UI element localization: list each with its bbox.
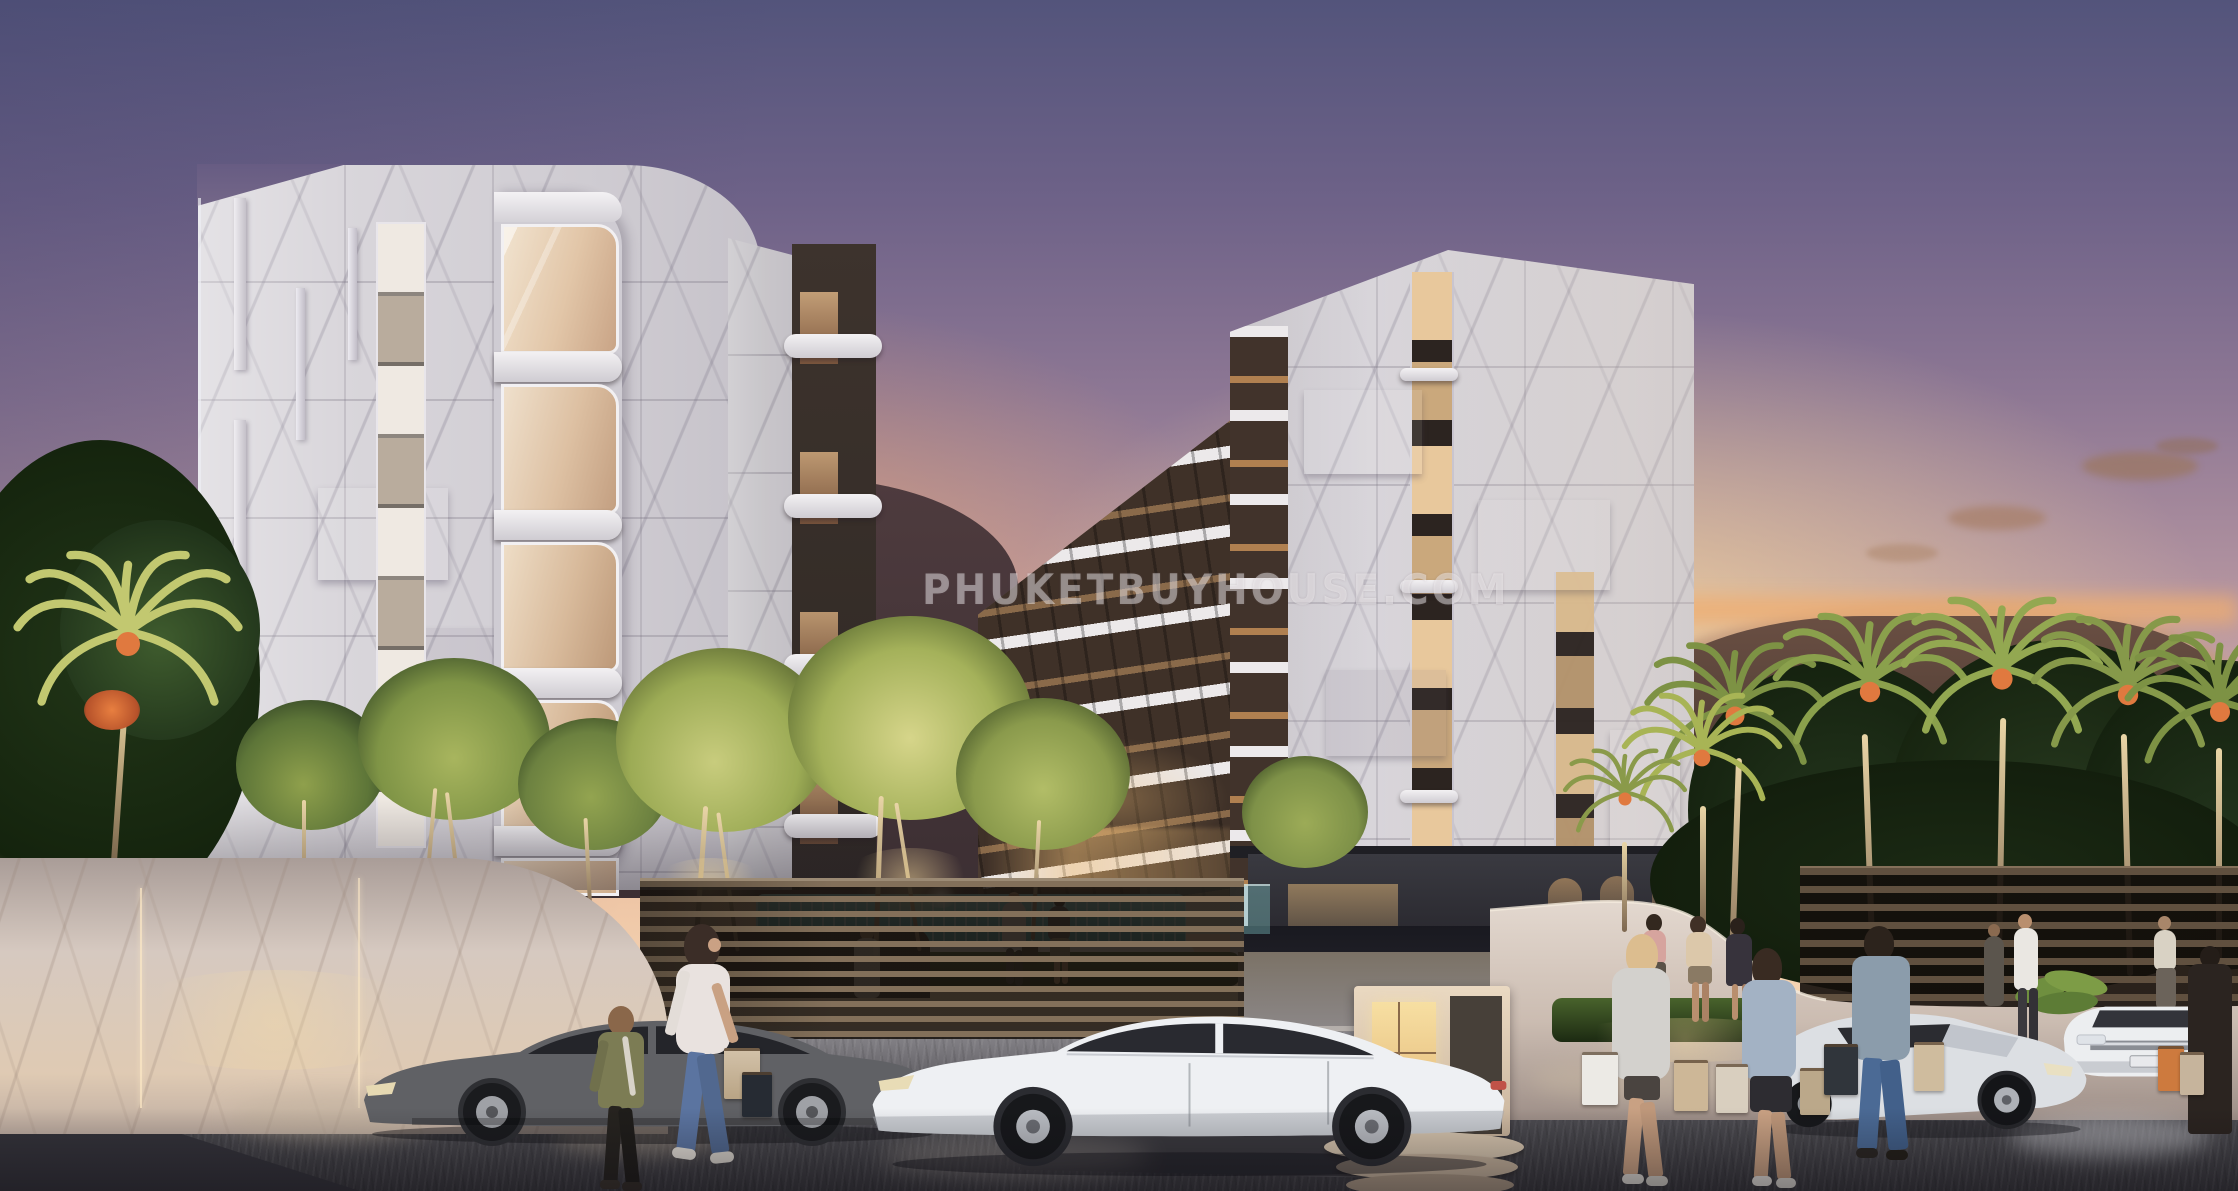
sunset-condo-rendering: PHUKETBUYHOUSE.COM [0, 0, 2238, 1191]
bay-window [501, 542, 619, 672]
bay-window [501, 224, 619, 354]
detail-shape [1750, 1076, 1792, 1112]
detail-shape [1852, 956, 1910, 1060]
detail-shape [2014, 928, 2038, 990]
shopping-bag [1674, 1060, 1708, 1111]
facade-tile-relief [1304, 390, 1422, 474]
detail-shape [2018, 914, 2032, 929]
shopping-bag [1824, 1044, 1858, 1095]
royal-palm [2120, 632, 2238, 792]
window-ledge [1400, 790, 1458, 803]
palm-flower-cluster [84, 690, 140, 730]
tree-canopy [1242, 756, 1368, 868]
detail-shape [366, 1082, 396, 1096]
detail-shape [18, 555, 239, 702]
shopping-bag [1716, 1064, 1748, 1113]
detail-shape [1612, 968, 1670, 1080]
facade-pilaster [296, 288, 305, 440]
tree-canopy [956, 698, 1130, 850]
detail-shape [1624, 1076, 1660, 1100]
facade-pilaster [348, 228, 357, 360]
window-ledge [1400, 368, 1458, 381]
cloud [1866, 544, 1938, 562]
detail-shape [1565, 751, 1685, 830]
entrance-palm [1560, 746, 1690, 852]
bay-window [501, 384, 619, 514]
detail-shape [1864, 926, 1894, 960]
detail-shape [1215, 1024, 1223, 1054]
detail-shape [1491, 1081, 1507, 1090]
facade-tile-relief [1326, 670, 1446, 756]
detail-shape [1730, 918, 1745, 935]
detail-shape [2002, 1095, 2012, 1105]
detail-shape [1742, 980, 1796, 1080]
detail-shape [708, 938, 721, 952]
shopping-bag [2180, 1052, 2204, 1095]
bottom-vignette [0, 1108, 2238, 1191]
detail-shape [2154, 930, 2176, 970]
shopping-bag [1582, 1052, 1618, 1105]
detail-shape [2128, 638, 2238, 760]
wrap-balcony-band [784, 334, 882, 358]
wrap-balcony-band [784, 494, 882, 518]
cloud [1948, 506, 2046, 530]
bay-floor-band [494, 510, 622, 540]
cloud [2082, 452, 2198, 480]
detail-shape [2158, 916, 2171, 930]
facade-pilaster [234, 198, 246, 370]
bay-cap-band [494, 192, 622, 222]
watermark-text: PHUKETBUYHOUSE.COM [922, 566, 1510, 615]
shopping-bag [1914, 1042, 1944, 1091]
cloud [2156, 438, 2218, 454]
palm-trunk [1622, 842, 1627, 932]
bay-floor-band [494, 352, 622, 382]
